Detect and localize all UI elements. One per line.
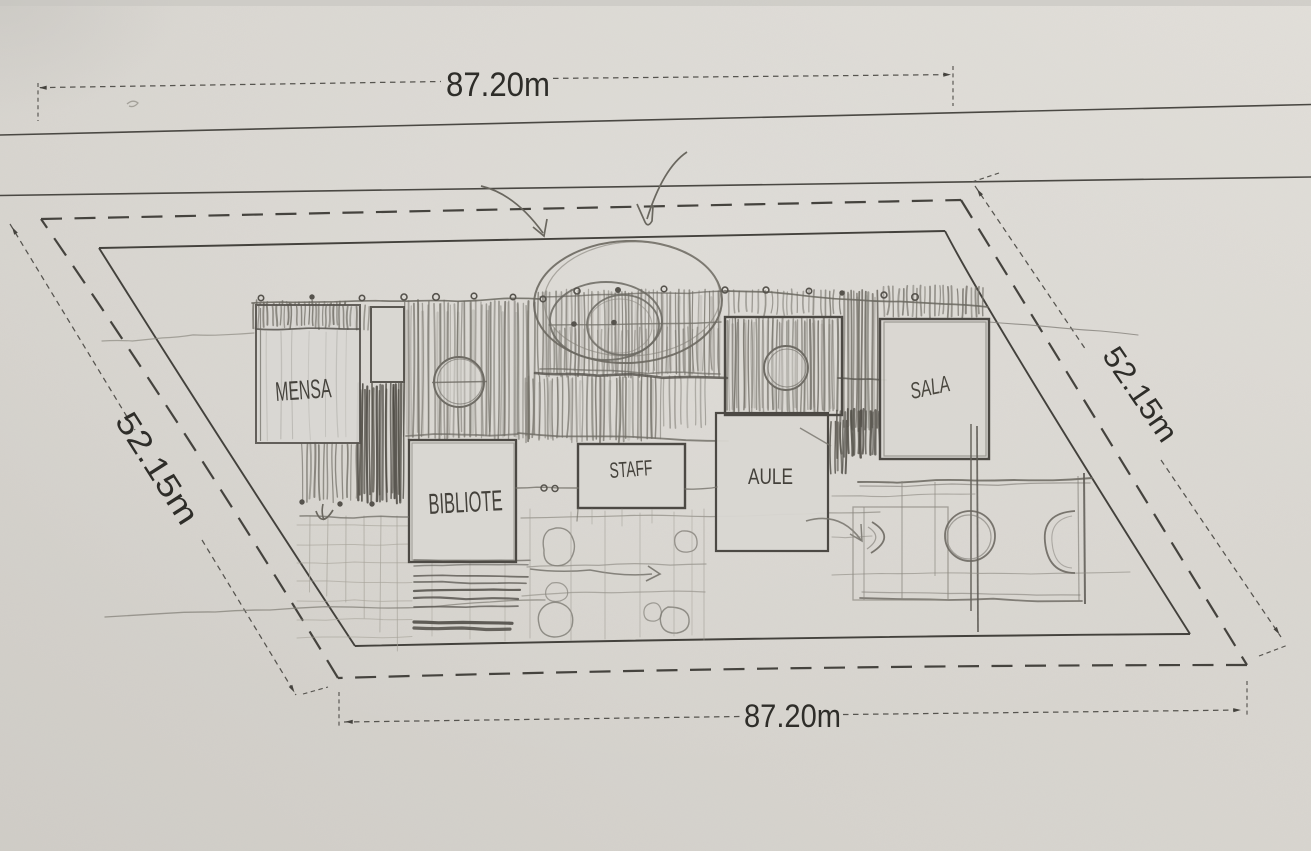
svg-text:AULE: AULE (748, 464, 793, 489)
svg-text:87.20m: 87.20m (744, 698, 841, 734)
svg-text:BIBLIOTE: BIBLIOTE (428, 485, 504, 521)
svg-text:STAFF: STAFF (609, 455, 654, 483)
svg-text:87.20m: 87.20m (446, 66, 550, 104)
svg-text:MENSA: MENSA (274, 373, 332, 407)
